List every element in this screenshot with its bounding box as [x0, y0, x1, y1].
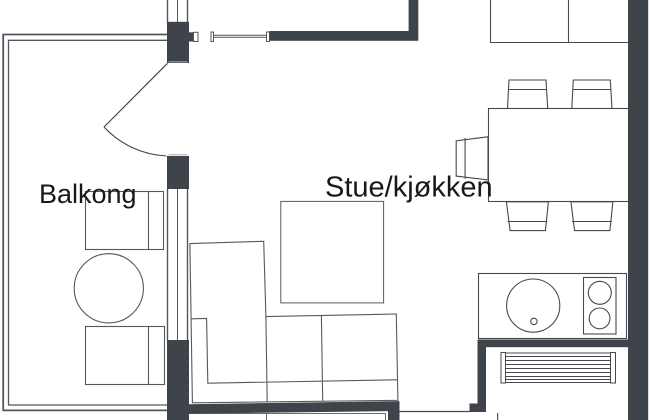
svg-text:Balkong: Balkong	[39, 179, 137, 209]
svg-text:Stue/kjøkken: Stue/kjøkken	[325, 172, 493, 204]
